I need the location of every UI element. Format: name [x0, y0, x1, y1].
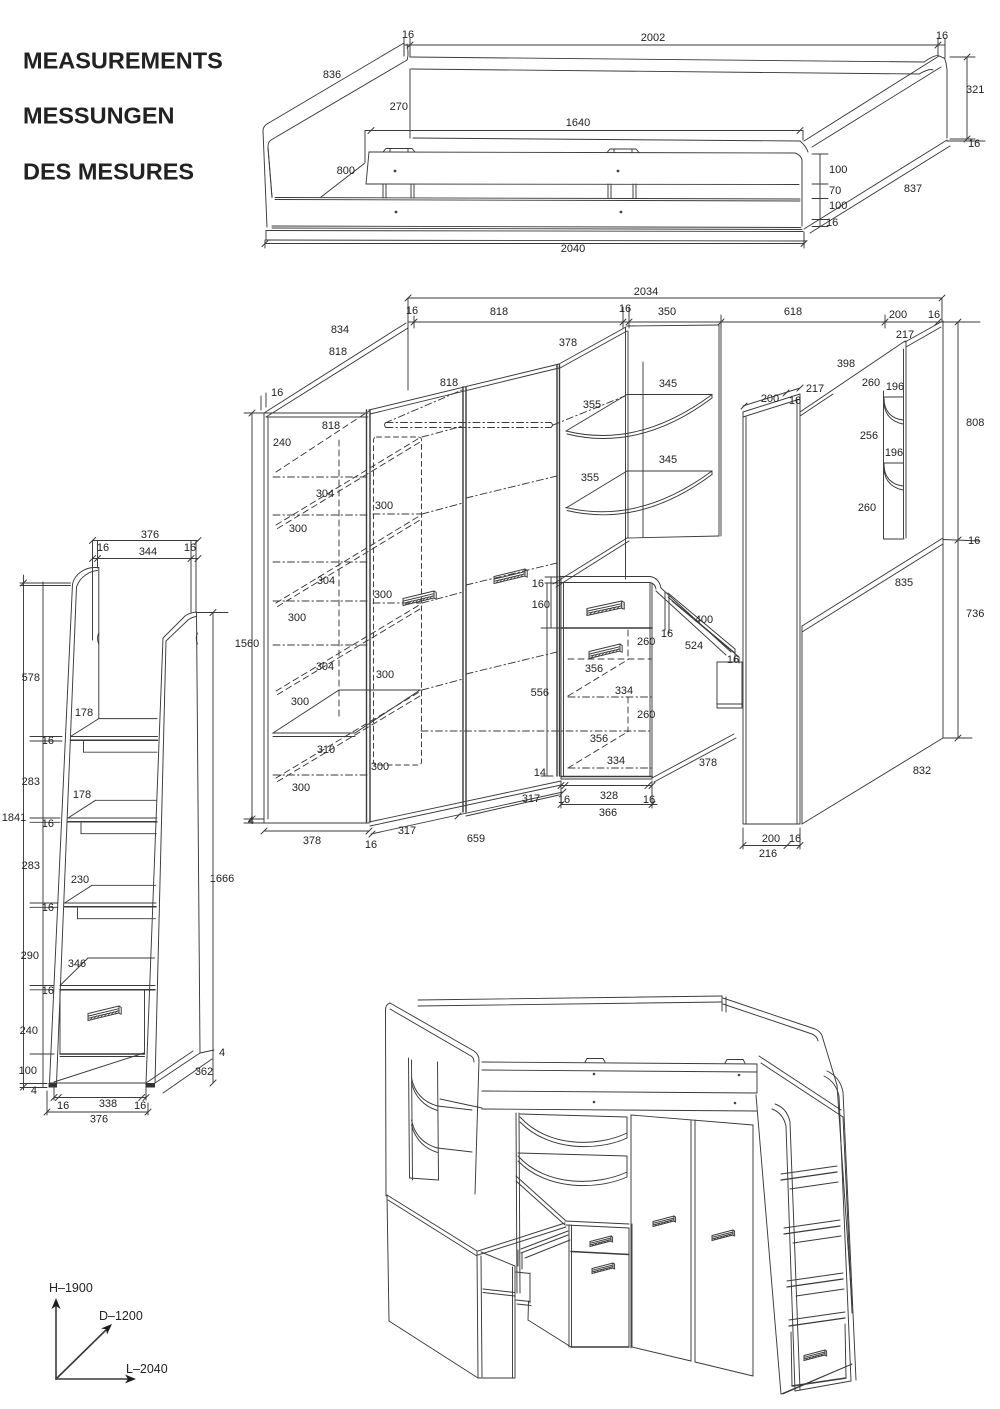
svg-text:290: 290 [21, 950, 39, 962]
svg-text:362: 362 [195, 1066, 213, 1078]
svg-text:300: 300 [371, 761, 389, 773]
svg-text:366: 366 [599, 807, 617, 819]
svg-text:2002: 2002 [641, 32, 665, 44]
svg-text:16: 16 [42, 735, 54, 747]
svg-text:618: 618 [784, 306, 802, 318]
svg-text:346: 346 [68, 958, 86, 970]
svg-text:16: 16 [365, 839, 377, 851]
svg-text:16: 16 [402, 29, 414, 41]
svg-text:300: 300 [288, 612, 306, 624]
svg-text:334: 334 [607, 755, 625, 767]
svg-text:H–1900: H–1900 [49, 1281, 93, 1295]
svg-text:16: 16 [727, 654, 739, 666]
svg-text:837: 837 [904, 183, 922, 195]
svg-text:16: 16 [789, 395, 801, 407]
svg-text:16: 16 [42, 818, 54, 830]
svg-text:345: 345 [659, 454, 677, 466]
svg-text:260: 260 [637, 709, 655, 721]
svg-text:556: 556 [531, 687, 549, 699]
svg-text:16: 16 [406, 305, 418, 317]
svg-text:578: 578 [22, 672, 40, 684]
svg-text:356: 356 [590, 733, 608, 745]
svg-text:4: 4 [248, 815, 254, 827]
svg-text:100: 100 [829, 200, 847, 212]
svg-text:16: 16 [184, 542, 196, 554]
svg-text:836: 836 [323, 69, 341, 81]
svg-text:178: 178 [73, 789, 91, 801]
svg-text:818: 818 [329, 346, 347, 358]
svg-text:338: 338 [99, 1098, 117, 1110]
svg-text:217: 217 [896, 329, 914, 341]
svg-text:178: 178 [75, 707, 93, 719]
svg-text:196: 196 [886, 381, 904, 393]
svg-text:808: 808 [966, 417, 984, 429]
svg-text:217: 217 [806, 383, 824, 395]
svg-text:4: 4 [31, 1085, 37, 1097]
svg-text:200: 200 [762, 833, 780, 845]
svg-text:16: 16 [928, 309, 940, 321]
svg-text:378: 378 [303, 835, 321, 847]
svg-text:260: 260 [858, 502, 876, 514]
svg-text:378: 378 [699, 757, 717, 769]
svg-text:321: 321 [966, 84, 984, 96]
svg-text:300: 300 [376, 669, 394, 681]
svg-text:4: 4 [219, 1047, 225, 1059]
svg-text:317: 317 [522, 793, 540, 805]
svg-text:1560: 1560 [235, 638, 259, 650]
svg-text:16: 16 [643, 794, 655, 806]
svg-text:345: 345 [659, 378, 677, 390]
svg-text:334: 334 [615, 685, 633, 697]
svg-text:240: 240 [20, 1025, 38, 1037]
svg-text:300: 300 [374, 589, 392, 601]
svg-text:736: 736 [966, 608, 984, 620]
svg-text:MESSUNGEN: MESSUNGEN [23, 103, 174, 129]
svg-text:16: 16 [42, 985, 54, 997]
svg-text:16: 16 [826, 217, 838, 229]
svg-text:16: 16 [968, 138, 980, 150]
svg-text:L–2040: L–2040 [126, 1362, 168, 1376]
svg-text:378: 378 [559, 337, 577, 349]
svg-text:260: 260 [862, 377, 880, 389]
svg-text:376: 376 [141, 529, 159, 541]
svg-text:398: 398 [837, 358, 855, 370]
svg-text:356: 356 [585, 663, 603, 675]
svg-text:300: 300 [375, 500, 393, 512]
svg-text:16: 16 [134, 1100, 146, 1112]
svg-text:16: 16 [57, 1100, 69, 1112]
svg-text:MEASUREMENTS: MEASUREMENTS [23, 48, 223, 74]
svg-text:16: 16 [532, 578, 544, 590]
svg-text:283: 283 [22, 860, 40, 872]
svg-text:304: 304 [316, 488, 334, 500]
svg-text:16: 16 [661, 628, 673, 640]
svg-text:834: 834 [331, 324, 349, 336]
svg-text:16: 16 [968, 535, 980, 547]
svg-text:350: 350 [658, 306, 676, 318]
svg-text:355: 355 [581, 472, 599, 484]
svg-text:196: 196 [885, 447, 903, 459]
svg-text:300: 300 [292, 782, 310, 794]
svg-text:256: 256 [860, 430, 878, 442]
svg-text:200: 200 [889, 309, 907, 321]
svg-text:304: 304 [317, 575, 335, 587]
svg-text:16: 16 [271, 387, 283, 399]
svg-text:310: 310 [317, 744, 335, 756]
svg-text:1640: 1640 [566, 117, 590, 129]
svg-text:832: 832 [913, 765, 931, 777]
svg-text:818: 818 [440, 377, 458, 389]
svg-text:317: 317 [398, 825, 416, 837]
svg-text:304: 304 [316, 661, 334, 673]
svg-text:376: 376 [90, 1114, 108, 1126]
svg-text:230: 230 [71, 874, 89, 886]
svg-text:344: 344 [139, 546, 157, 558]
svg-text:283: 283 [22, 776, 40, 788]
svg-text:800: 800 [337, 165, 355, 177]
svg-text:300: 300 [289, 523, 307, 535]
svg-text:524: 524 [685, 640, 703, 652]
svg-text:100: 100 [829, 164, 847, 176]
svg-text:818: 818 [322, 420, 340, 432]
svg-text:200: 200 [761, 393, 779, 405]
svg-text:16: 16 [97, 542, 109, 554]
svg-text:216: 216 [759, 848, 777, 860]
svg-text:328: 328 [600, 790, 618, 802]
svg-text:16: 16 [42, 902, 54, 914]
svg-text:1841: 1841 [2, 812, 26, 824]
svg-text:D–1200: D–1200 [99, 1309, 143, 1323]
svg-text:818: 818 [490, 306, 508, 318]
svg-text:300: 300 [291, 696, 309, 708]
svg-text:16: 16 [789, 833, 801, 845]
svg-text:2034: 2034 [634, 286, 658, 298]
svg-text:260: 260 [637, 636, 655, 648]
svg-text:355: 355 [583, 399, 601, 411]
svg-text:270: 270 [390, 101, 408, 113]
svg-text:70: 70 [829, 185, 841, 197]
svg-text:659: 659 [467, 833, 485, 845]
svg-text:16: 16 [619, 303, 631, 315]
svg-text:835: 835 [895, 577, 913, 589]
svg-text:DES MESURES: DES MESURES [23, 159, 194, 185]
svg-text:16: 16 [558, 794, 570, 806]
svg-text:240: 240 [273, 437, 291, 449]
svg-text:16: 16 [936, 30, 948, 42]
svg-text:1666: 1666 [210, 873, 234, 885]
svg-text:100: 100 [19, 1065, 37, 1077]
svg-text:14: 14 [534, 767, 546, 779]
svg-text:400: 400 [695, 614, 713, 626]
svg-text:2040: 2040 [561, 243, 585, 255]
